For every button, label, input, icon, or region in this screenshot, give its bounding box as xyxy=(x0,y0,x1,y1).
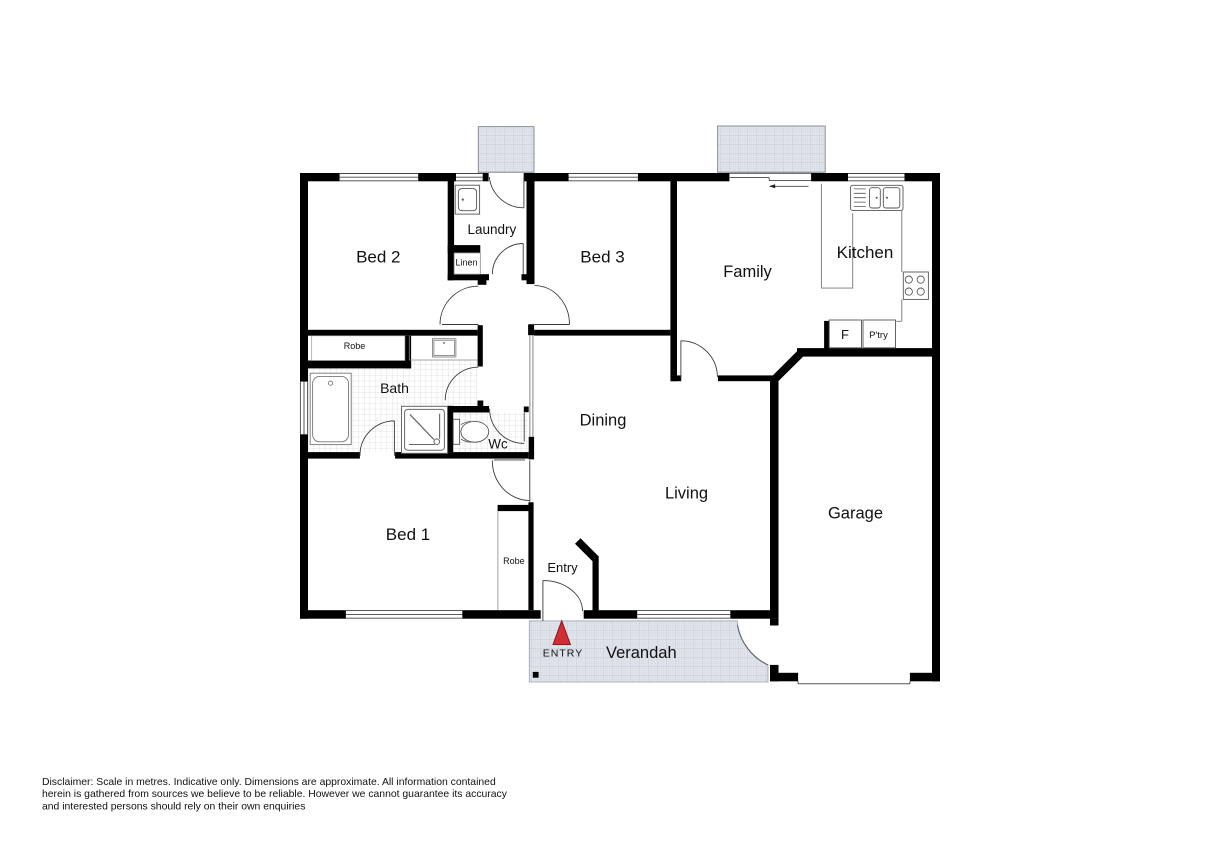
svg-text:Garage: Garage xyxy=(828,505,883,523)
svg-text:herein is gathered from source: herein is gathered from sources we belie… xyxy=(42,789,508,800)
svg-text:P'try: P'try xyxy=(869,330,888,341)
svg-text:Bed 2: Bed 2 xyxy=(356,248,400,267)
svg-text:ENTRY: ENTRY xyxy=(543,648,583,660)
svg-text:Bed 1: Bed 1 xyxy=(386,525,430,544)
svg-text:Bath: Bath xyxy=(380,380,409,396)
svg-text:Living: Living xyxy=(665,485,708,503)
svg-text:Entry: Entry xyxy=(547,560,578,575)
svg-text:Bed 3: Bed 3 xyxy=(580,248,624,267)
svg-text:Family: Family xyxy=(723,263,772,281)
svg-text:F: F xyxy=(841,327,849,342)
svg-text:Robe: Robe xyxy=(503,556,525,566)
svg-text:Linen: Linen xyxy=(455,258,477,268)
svg-text:Wc: Wc xyxy=(488,437,508,452)
svg-text:Robe: Robe xyxy=(344,341,366,351)
svg-text:Verandah: Verandah xyxy=(606,644,677,662)
svg-text:and interested persons should: and interested persons should rely on th… xyxy=(42,801,305,812)
svg-text:Dining: Dining xyxy=(580,412,627,430)
svg-text:Kitchen: Kitchen xyxy=(837,243,894,262)
svg-text:Laundry: Laundry xyxy=(468,222,517,237)
svg-text:Disclaimer: Scale in metres. I: Disclaimer: Scale in metres. Indicative … xyxy=(42,777,496,788)
